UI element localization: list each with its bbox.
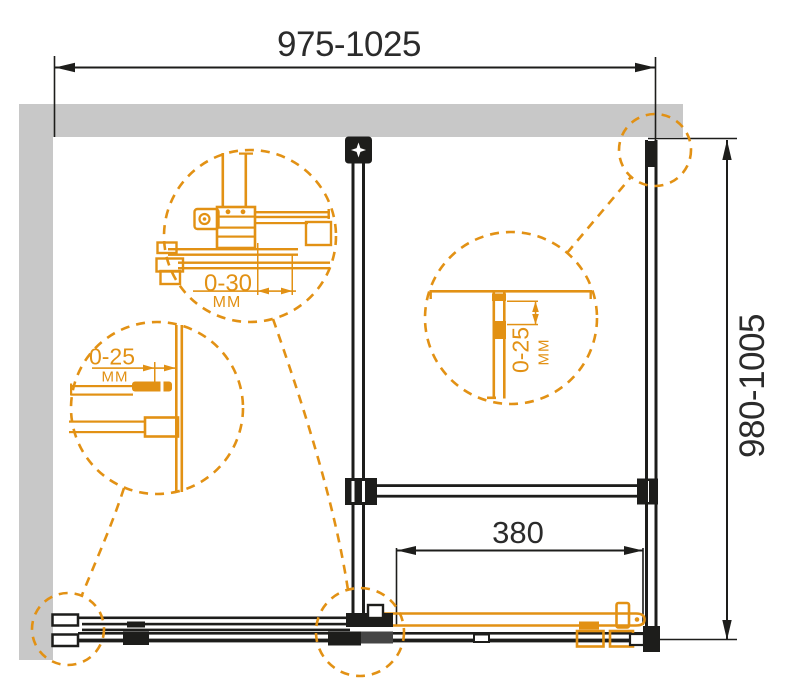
crossbar-line-2 [356,495,652,498]
profile-line-right [655,140,658,652]
detail-left-range-label: 0-25 [89,344,135,371]
crossbar-left-connector [345,478,377,505]
detail-top-unit-label: MM [213,294,242,312]
height-dimension-label: 980-1005 [733,314,773,458]
width-dimension-label: 975-1025 [277,25,421,65]
junction-cap [368,605,383,618]
wall-profile-line-1 [175,325,178,492]
arrow-left [55,63,75,72]
callout-connector-left [82,488,124,595]
dimension-height [648,139,737,641]
junction-block-low [328,632,361,646]
crossbar-line-1 [356,484,652,487]
arrow-right [635,63,655,72]
arrow-up [722,140,731,160]
wall-side-shoe [630,634,644,645]
vertical-profile-line-2 [503,293,506,399]
glass-edge-left [352,160,355,613]
door-end-dot [635,617,640,622]
track-end-cap-bottom [53,635,79,647]
door-glass-bar [384,614,645,626]
detail-circle-middle [425,232,597,404]
callout-connector-top [273,319,348,590]
wall-profile-line-2 [181,325,184,492]
roller-wheel-housing [195,209,219,229]
adjustable-profile-top [132,382,172,392]
top-rail-line [430,290,592,293]
adjustable-profile-bottom [145,418,178,437]
vertical-profile-line-1 [493,293,496,399]
door-travel-label: 380 [492,515,544,551]
arrow-down [722,620,731,640]
profile-bottom-foot [643,626,660,652]
track-stopper [474,635,489,643]
detail-left-unit-label: MM [102,369,129,386]
shower-enclosure-technical-drawing: 975-1025 980-1005 380 0-30 MM 0-25 MM 0-… [0,0,800,699]
detail-middle-range-label: 0-25 [508,327,535,373]
arrow-left [397,546,416,555]
profile-top-insert [645,141,657,167]
arrow-right [624,546,643,555]
callout-connector-middle [567,177,631,253]
track-fitting-small [127,622,145,628]
door-roller-tab [579,622,599,630]
profile-line-left [645,140,648,650]
door-handle [617,603,630,628]
detail-middle-unit-label: MM [536,339,553,366]
top-wall [19,104,683,137]
junction-block-gray [361,632,393,644]
track-fitting-large [123,632,149,646]
track-end-cap-top [53,615,79,626]
left-wall [19,104,53,660]
right-wall-profile [643,140,660,652]
glass-edge-right [362,160,365,613]
